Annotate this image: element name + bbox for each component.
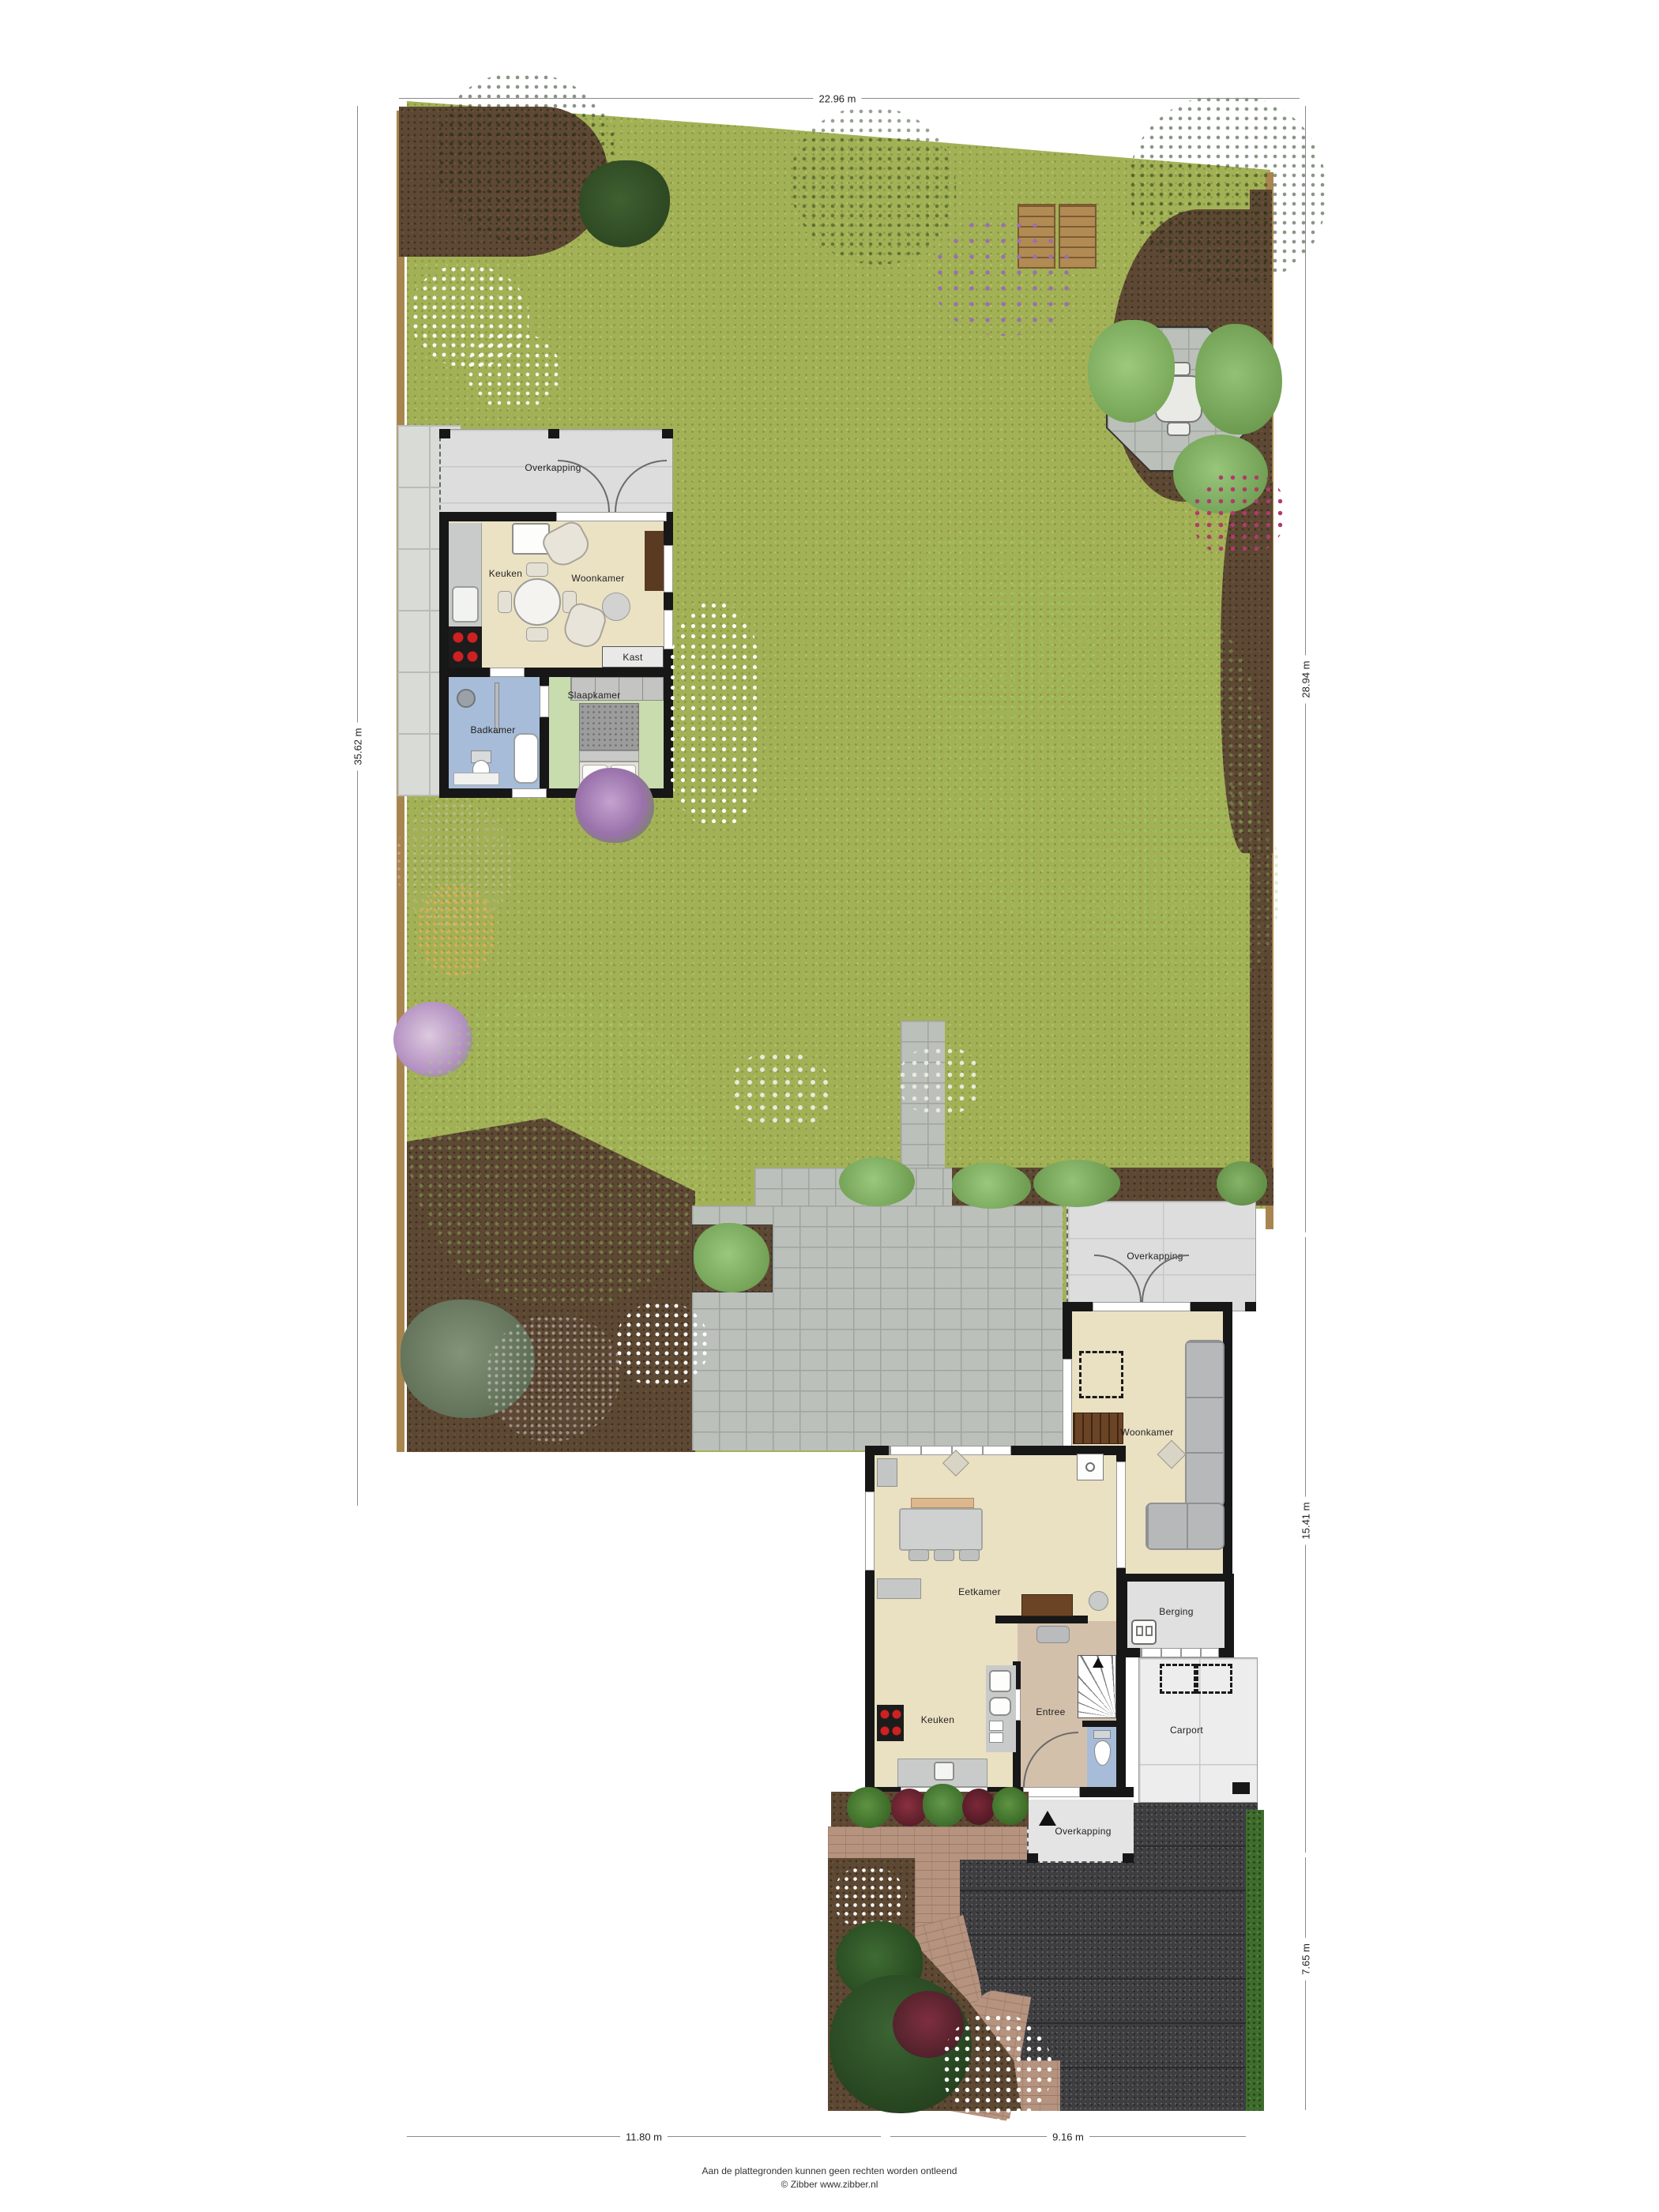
canopy-post xyxy=(662,429,673,438)
flower-bush-white xyxy=(615,1301,709,1388)
bush-light xyxy=(839,1157,915,1206)
lawn-flower-clump xyxy=(731,1051,833,1130)
guesthouse-kitchen-label: Keuken xyxy=(489,568,523,579)
dining-table xyxy=(899,1508,983,1551)
dim-label-bottom-left: 11.80 m xyxy=(620,2131,668,2143)
bush-light xyxy=(1195,324,1282,434)
livingroom-label: Woonkamer xyxy=(1120,1427,1173,1438)
bathroom-label: Badkamer xyxy=(470,724,515,735)
flower-bush-white xyxy=(466,332,561,411)
chair xyxy=(959,1549,980,1561)
passage-opening xyxy=(1116,1461,1126,1568)
dim-label-right-middle: 15.41 m xyxy=(1300,1497,1312,1545)
front-door-opening xyxy=(1023,1787,1080,1797)
washing-machine-drum xyxy=(1145,1626,1153,1636)
pouf-round xyxy=(1089,1591,1108,1611)
side-table-round xyxy=(602,592,630,621)
carport-skylight xyxy=(1160,1664,1196,1694)
chair xyxy=(498,591,512,613)
toilet-partition xyxy=(1082,1721,1116,1727)
extractor-unit xyxy=(989,1670,1011,1692)
dim-line-right-lower xyxy=(1305,1857,1306,2110)
canopy-post xyxy=(1123,1853,1134,1863)
hedge-strip xyxy=(1246,1810,1264,2111)
kitchen-sink xyxy=(934,1762,954,1781)
bush xyxy=(847,1787,891,1828)
bathroom-exterior-door xyxy=(512,788,547,798)
tv-cabinet xyxy=(645,531,664,591)
desk-wood xyxy=(1021,1594,1073,1616)
bush xyxy=(923,1784,965,1826)
mainhouse-post xyxy=(1066,1302,1078,1311)
wc-tank xyxy=(1093,1730,1111,1739)
flower-bush-purple xyxy=(575,768,654,843)
guesthouse-livingroom-label: Woonkamer xyxy=(571,573,624,584)
stove-cooktop xyxy=(449,626,482,668)
chair xyxy=(934,1549,954,1561)
berging-door-opening xyxy=(1140,1648,1219,1657)
partition-wall xyxy=(995,1616,1088,1623)
bush-light xyxy=(952,1163,1031,1209)
bush-terrace-planter xyxy=(694,1223,769,1292)
diningroom-label: Eetkamer xyxy=(958,1586,1001,1597)
bed-blanket xyxy=(579,703,639,750)
patio-chair-south xyxy=(1167,422,1191,436)
chair xyxy=(526,627,548,641)
washing-machine xyxy=(1131,1619,1157,1645)
void-marker xyxy=(1079,1351,1123,1398)
kitchen-sink xyxy=(452,586,479,623)
bush-cluster-purple xyxy=(932,217,1078,336)
bedroom-label: Slaapkamer xyxy=(567,690,620,701)
diningroom-window-west xyxy=(865,1492,875,1571)
diningroom-garden-doors xyxy=(889,1446,1011,1455)
dim-line-right-middle xyxy=(1305,1237,1306,1853)
garden-floorplan: Overkapping Kast Keuken Woonkamer Badkam… xyxy=(0,0,1659,2212)
sofa-vertical xyxy=(1185,1340,1224,1507)
stairs-direction-arrow xyxy=(1093,1657,1104,1668)
guesthouse-window-east xyxy=(664,610,673,649)
flower-bush-white xyxy=(668,600,762,829)
guesthouse-door-opening xyxy=(556,512,667,521)
sofa-chaise xyxy=(1145,1503,1224,1550)
chair xyxy=(526,562,548,577)
dim-line-left xyxy=(357,106,358,1506)
sideboard xyxy=(877,1578,921,1599)
bush-light xyxy=(1033,1160,1120,1207)
dim-label-top: 22.96 m xyxy=(814,93,862,105)
flower-bush-white xyxy=(833,1866,906,1929)
cooktop xyxy=(877,1705,904,1741)
livingroom-door-opening xyxy=(1093,1302,1191,1311)
dim-label-right-lower: 7.65 m xyxy=(1300,1938,1312,1981)
carport-label: Carport xyxy=(1170,1725,1203,1736)
closet-label: Kast xyxy=(623,652,642,663)
disclaimer: Aan de plattegronden kunnen geen rechten… xyxy=(513,2165,1145,2191)
carport-skylight xyxy=(1196,1664,1232,1694)
desk-chair xyxy=(1036,1626,1070,1643)
sink-double xyxy=(989,1721,1003,1731)
disclaimer-line1: Aan de plattegronden kunnen geen rechten… xyxy=(513,2165,1145,2178)
bathroom-door-opening xyxy=(490,668,525,677)
canopy-post xyxy=(1027,1853,1038,1863)
dining-table-round xyxy=(513,578,561,626)
kitchen-label: Keuken xyxy=(921,1714,955,1725)
bed-sheet xyxy=(579,750,639,762)
tv-cabinet xyxy=(877,1458,897,1487)
guesthouse-partition-h xyxy=(449,668,664,677)
berging-label: Berging xyxy=(1159,1606,1193,1617)
sink-double xyxy=(989,1732,1003,1743)
livingroom-window-west xyxy=(1063,1359,1072,1450)
washing-machine-drum xyxy=(1136,1626,1143,1636)
disclaimer-line2: © Zibber www.zibber.nl xyxy=(513,2178,1145,2191)
bush-light xyxy=(1217,1161,1267,1206)
bush-red xyxy=(962,1789,995,1825)
bush xyxy=(992,1787,1029,1825)
dim-label-left: 35.62 m xyxy=(352,723,364,771)
chair xyxy=(908,1549,929,1561)
entree-label: Entree xyxy=(1036,1706,1065,1717)
dim-label-bottom-right: 9.16 m xyxy=(1047,2131,1089,2143)
bedroom-door-opening xyxy=(540,686,549,717)
bath-mat xyxy=(453,773,499,785)
north-arrow xyxy=(1039,1811,1056,1826)
mainhouse-post xyxy=(1245,1302,1256,1311)
carport-post xyxy=(1232,1782,1250,1794)
flower-tree-white xyxy=(942,2013,1052,2124)
dining-bench xyxy=(911,1498,974,1508)
guesthouse-window-east xyxy=(664,545,673,592)
dim-label-right-upper: 28.94 m xyxy=(1300,656,1312,704)
shower-head xyxy=(457,689,476,708)
canopy-post xyxy=(548,429,559,438)
mainhouse-canopy-bottom-label: Overkapping xyxy=(1055,1826,1111,1837)
lawn-flower-clump xyxy=(897,1045,984,1116)
bathtub xyxy=(513,733,539,784)
lamp-circle xyxy=(1085,1462,1095,1472)
sideboard-wood xyxy=(1073,1413,1123,1444)
bush-orange xyxy=(417,885,496,976)
appliance-unit xyxy=(989,1697,1011,1716)
canopy-post xyxy=(439,429,450,438)
